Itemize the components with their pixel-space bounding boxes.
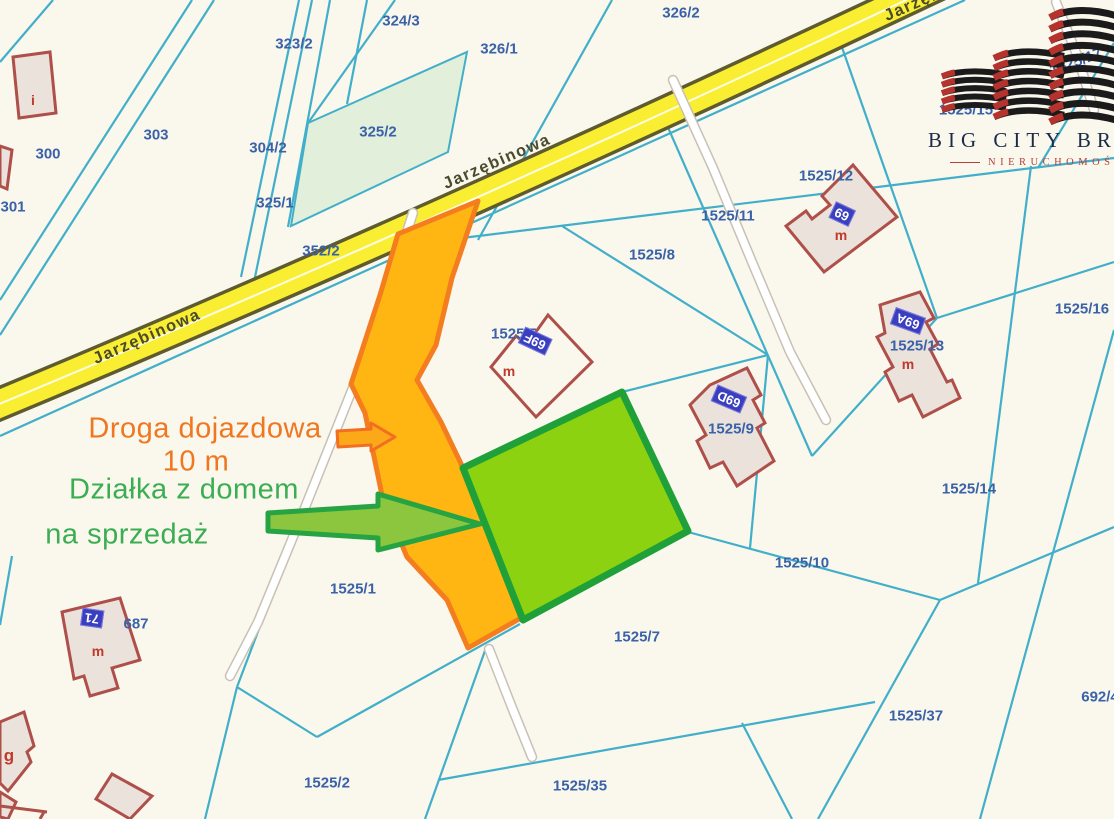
- logo: BIG CITY BROKER NIERUCHOMOŚCI: [920, 0, 1114, 190]
- parcel-label: 323/2: [275, 36, 313, 53]
- access-road-annotation-line1: Droga dojazdowa: [88, 413, 321, 446]
- parcel-label: 1525/10: [775, 555, 829, 572]
- building-letter-label: m: [835, 227, 847, 243]
- parcel-label: 352/2: [302, 243, 340, 260]
- building-letter-label: m: [503, 363, 515, 379]
- house-number-badge: 69: [828, 201, 856, 227]
- parcel-label: 324/3: [382, 13, 420, 30]
- house-number-badge: 69F: [517, 326, 552, 355]
- plot-annotation-line2: na sprzedaż: [45, 519, 209, 552]
- parcel-label: 1525/8: [629, 247, 675, 264]
- building-letter-label: m: [92, 643, 104, 659]
- parcel-label: 325/2: [359, 124, 397, 141]
- parcel-label: 300: [35, 146, 60, 163]
- parcel-label: 326/1: [480, 41, 518, 58]
- parcel-label: 1525/7: [614, 629, 660, 646]
- logo-subtitle-text: NIERUCHOMOŚCI: [988, 157, 1114, 168]
- house-number-badge: 71: [80, 608, 105, 629]
- parcel-label: 1525/13: [890, 338, 944, 355]
- logo-dash-left: [950, 162, 980, 163]
- logo-subtitle: NIERUCHOMOŚCI: [950, 157, 1114, 168]
- parcel-label: 692/4: [1081, 689, 1114, 706]
- parcel-label: 1525/14: [942, 481, 996, 498]
- parcel-label: 326/2: [662, 5, 700, 22]
- parcel-label: 325/1: [256, 195, 294, 212]
- house-number-badge: 69A: [890, 307, 926, 335]
- parcel-label: 1525/12: [799, 168, 853, 185]
- building-letter-label: i: [31, 92, 35, 108]
- parcel-label: 1525/35: [553, 778, 607, 795]
- parcel-label: 1525/2: [304, 775, 350, 792]
- parcel-label: 303: [143, 127, 168, 144]
- parcel-label: 687: [123, 616, 148, 633]
- cadastral-map: 324/3323/2326/1326/2303300301304/2325/23…: [0, 0, 1114, 819]
- parcel-label: 1525/11: [701, 208, 754, 225]
- parcel-label: 1525/9: [708, 421, 754, 438]
- building-letter-label: m: [902, 356, 914, 372]
- parcel-label: 304/2: [249, 140, 287, 157]
- plot-annotation-line1: Działka z domem: [69, 474, 299, 507]
- parcel-label: 1525/16: [1055, 301, 1109, 318]
- house-number-badge: 69D: [711, 384, 747, 413]
- street-label: Jarzębinowa: [90, 305, 204, 368]
- parcel-label: 1525/1: [330, 581, 376, 598]
- logo-title: BIG CITY BROKER: [928, 128, 1114, 153]
- building-letter-label: g: [4, 746, 14, 766]
- logo-buildings-icon: [920, 0, 1114, 130]
- street-label: Jarzębinowa: [440, 130, 554, 193]
- parcel-label: 301: [0, 199, 25, 216]
- parcel-label: 1525/37: [889, 708, 943, 725]
